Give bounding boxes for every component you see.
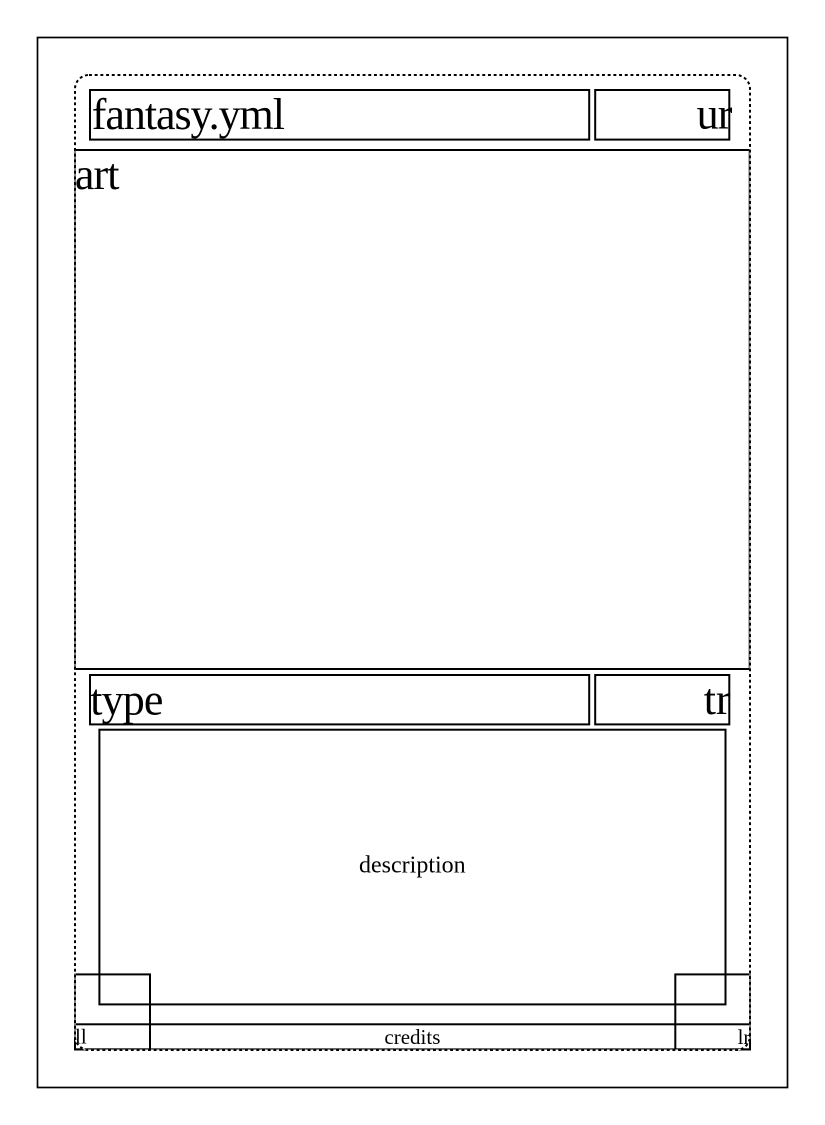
svg-text:description: description (359, 852, 466, 878)
svg-text:ur: ur (697, 90, 733, 139)
svg-text:type: type (90, 675, 162, 724)
svg-text:fantasy.yml: fantasy.yml (92, 90, 285, 139)
svg-text:credits: credits (384, 1025, 440, 1049)
svg-text:tr: tr (704, 675, 731, 724)
svg-text:art: art (75, 150, 119, 199)
svg-text:ll: ll (75, 1025, 87, 1049)
svg-text:lr: lr (738, 1025, 751, 1049)
